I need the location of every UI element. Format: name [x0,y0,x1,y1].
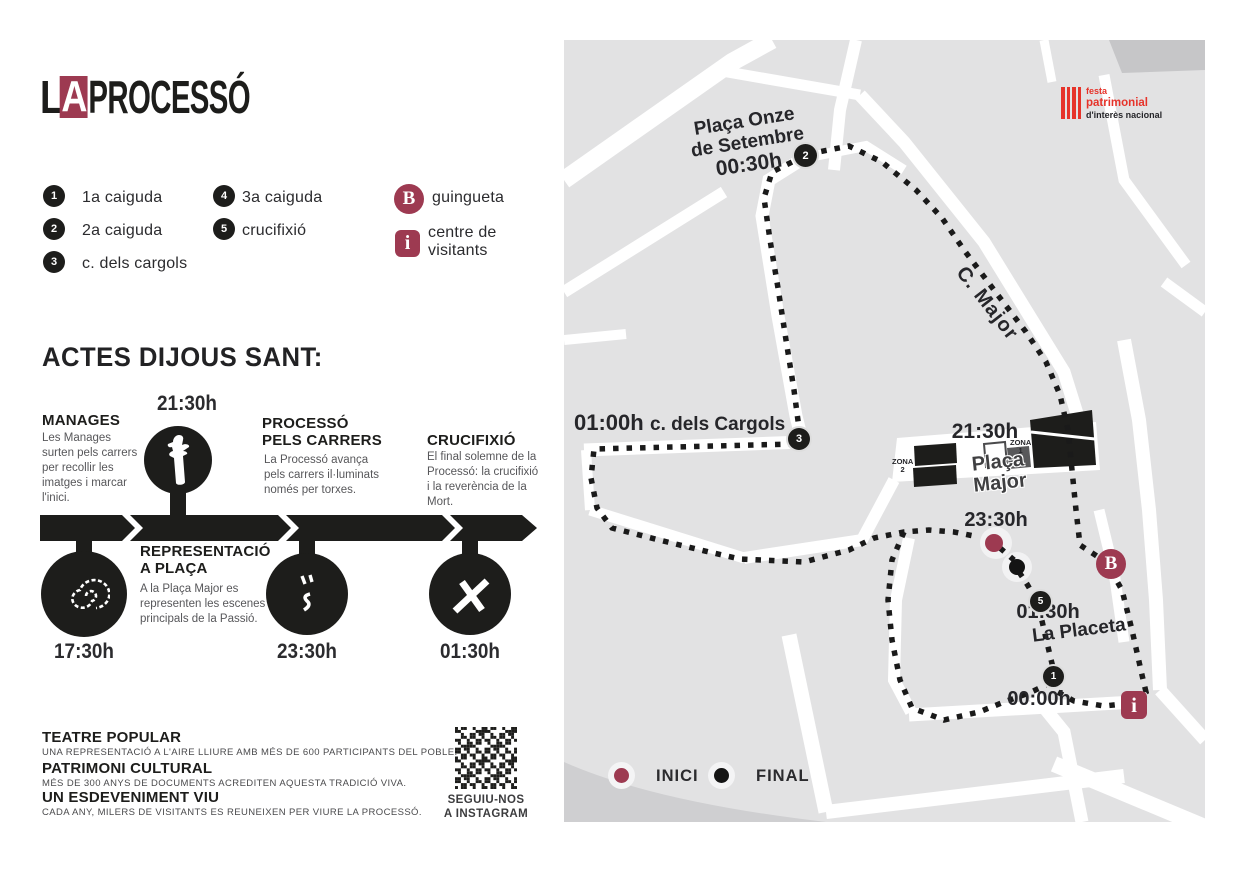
map-marker-5: 5 [1028,589,1053,614]
manages-stem [170,492,186,516]
timeline-time-2130: 21:30h [147,392,228,416]
legend-label-guingueta: guingueta [432,189,504,207]
legend-label-visitants-line2: visitants [428,242,497,260]
timeline-time-1730: 17:30h [44,640,125,664]
festa-logo-line2: patrimonial [1086,97,1162,110]
logo-a-box: A [60,76,88,118]
route-map: festa patrimonial d'interès nacional Pla… [564,40,1205,822]
legend-label-5: crucifixió [242,222,306,240]
timeline-time-0130: 01:30h [430,640,511,664]
representacio-title: REPRESENTACIÓ A PLAÇA [140,543,271,578]
festa-logo-bars-icon [1061,87,1081,120]
timeline: 21:30h MANAGES Les Manages surten pels c… [40,390,540,690]
map-visitor-centre-badge: i [1121,691,1147,719]
drums-spiral-icon [58,568,110,620]
instagram-caption: SEGUIU-NOS A INSTAGRAM [420,793,552,822]
legend-label-3: c. dels cargols [82,255,187,273]
label-time-0000: 00:00h [989,688,1089,711]
label-zona-1-num: 1 [1010,447,1031,455]
guingueta-badge: B [394,184,424,214]
map-guingueta-badge-letter: B [1105,553,1118,575]
representacio-title-line1: REPRESENTACIÓ [140,543,271,560]
section-heading: ACTES DIJOUS SANT: [42,342,323,373]
inici-legend-dot [614,768,629,783]
representacio-desc: A la Plaça Major es representen les esce… [140,582,268,627]
logo-letter-l: L [40,76,61,118]
carrers-title-line1: PROCESSÓ [262,415,382,432]
map-visitor-centre-badge-letter: i [1131,693,1137,718]
legend-marker-4: 4 [213,185,235,207]
map-guingueta-badge: B [1096,549,1126,579]
legend-label-4: 3a caiguda [242,189,322,207]
legend-marker-3-num: 3 [51,256,57,268]
crucifixio-desc: El final solemne de la Processó: la cruc… [427,450,539,510]
festa-logo-line1: festa [1086,87,1162,97]
legend-marker-5: 5 [213,218,235,240]
crucifixio-title: CRUCIFIXIÓ [427,432,516,449]
visitor-centre-badge: i [395,230,420,257]
manages-event-circle [144,426,212,494]
label-zona-2: ZONA 2 [892,458,913,475]
carrers-desc: La Processó avança pels carrers il·lumin… [264,453,392,498]
legend-marker-1-num: 1 [51,190,57,202]
timeline-time-2330: 23:30h [267,640,348,664]
map-marker-2: 2 [792,142,819,169]
legend-label-2: 2a caiguda [82,222,162,240]
footer-desc-2: MÉS DE 300 ANYS DE DOCUMENTS ACREDITEN A… [42,778,406,789]
legend-marker-3: 3 [43,251,65,273]
festa-patrimonial-logo: festa patrimonial d'interès nacional [1061,87,1162,120]
event-circle-0130 [429,553,511,635]
representacio-title-line2: A PLAÇA [140,560,271,577]
map-marker-5-num: 5 [1038,596,1044,607]
footer-title-2: PATRIMONI CULTURAL [42,760,212,777]
legend-marker-2: 2 [43,218,65,240]
qr-code [455,727,517,789]
final-legend-dot [714,768,729,783]
logo-text: PROCESSÓ [88,76,250,118]
map-block-topright [1109,40,1205,73]
legend-marker-5-num: 5 [221,223,227,235]
map-marker-2-num: 2 [802,150,808,162]
footer-title-1: TEATRE POPULAR [42,729,181,746]
app-logo: L A PROCESSÓ [40,76,296,118]
map-marker-1-num: 1 [1051,671,1057,682]
map-marker-3-num: 3 [796,433,802,445]
label-zona-2-num: 2 [892,466,913,474]
label-time-0100: 01:00h [574,410,644,436]
carrers-title-line2: PELS CARRERS [262,432,382,449]
event-circle-1730 [41,551,127,637]
legend-label-visitants-line1: centre de [428,224,497,242]
instagram-caption-line2: A INSTAGRAM [420,807,552,821]
scene-figure-icon [284,568,330,620]
label-time-2330: 23:30h [946,509,1046,532]
label-zona-1: ZONA 1 [1010,439,1031,456]
instagram-caption-line1: SEGUIU-NOS [420,793,552,807]
legend-label-1: 1a caiguda [82,189,162,207]
visitor-centre-badge-letter: i [405,232,411,255]
event-circle-2330 [266,553,348,635]
map-marker-1: 1 [1041,664,1066,689]
legend-label-visitants: centre de visitants [428,224,497,261]
legend-marker-1: 1 [43,185,65,207]
manages-title: MANAGES [42,412,120,429]
timeline-arrow-band [40,515,537,541]
map-marker-3: 3 [786,426,812,452]
final-point [1009,559,1025,575]
final-legend-label: FINAL [756,767,810,786]
footer-desc-1: UNA REPRESENTACIÓ A L'AIRE LLIURE AMB MÉ… [42,747,458,758]
logo-letter-a: A [61,77,85,117]
inici-legend-label: INICI [656,767,699,786]
label-cargols: c. dels Cargols [650,414,785,436]
statue-icon [158,432,198,488]
carrers-title: PROCESSÓ PELS CARRERS [262,415,382,450]
legend-marker-4-num: 4 [221,190,227,202]
legend-marker-2-num: 2 [51,223,57,235]
festa-logo-line3: d'interès nacional [1086,110,1162,121]
cross-icon [445,569,495,619]
footer-desc-3: CADA ANY, MILERS DE VISITANTS ES REUNEIX… [42,807,422,818]
footer-title-3: UN ESDEVENIMENT VIU [42,789,219,806]
inici-point [985,534,1003,552]
guingueta-badge-letter: B [403,188,416,210]
manages-desc: Les Manages surten pels carrers per reco… [42,431,140,506]
